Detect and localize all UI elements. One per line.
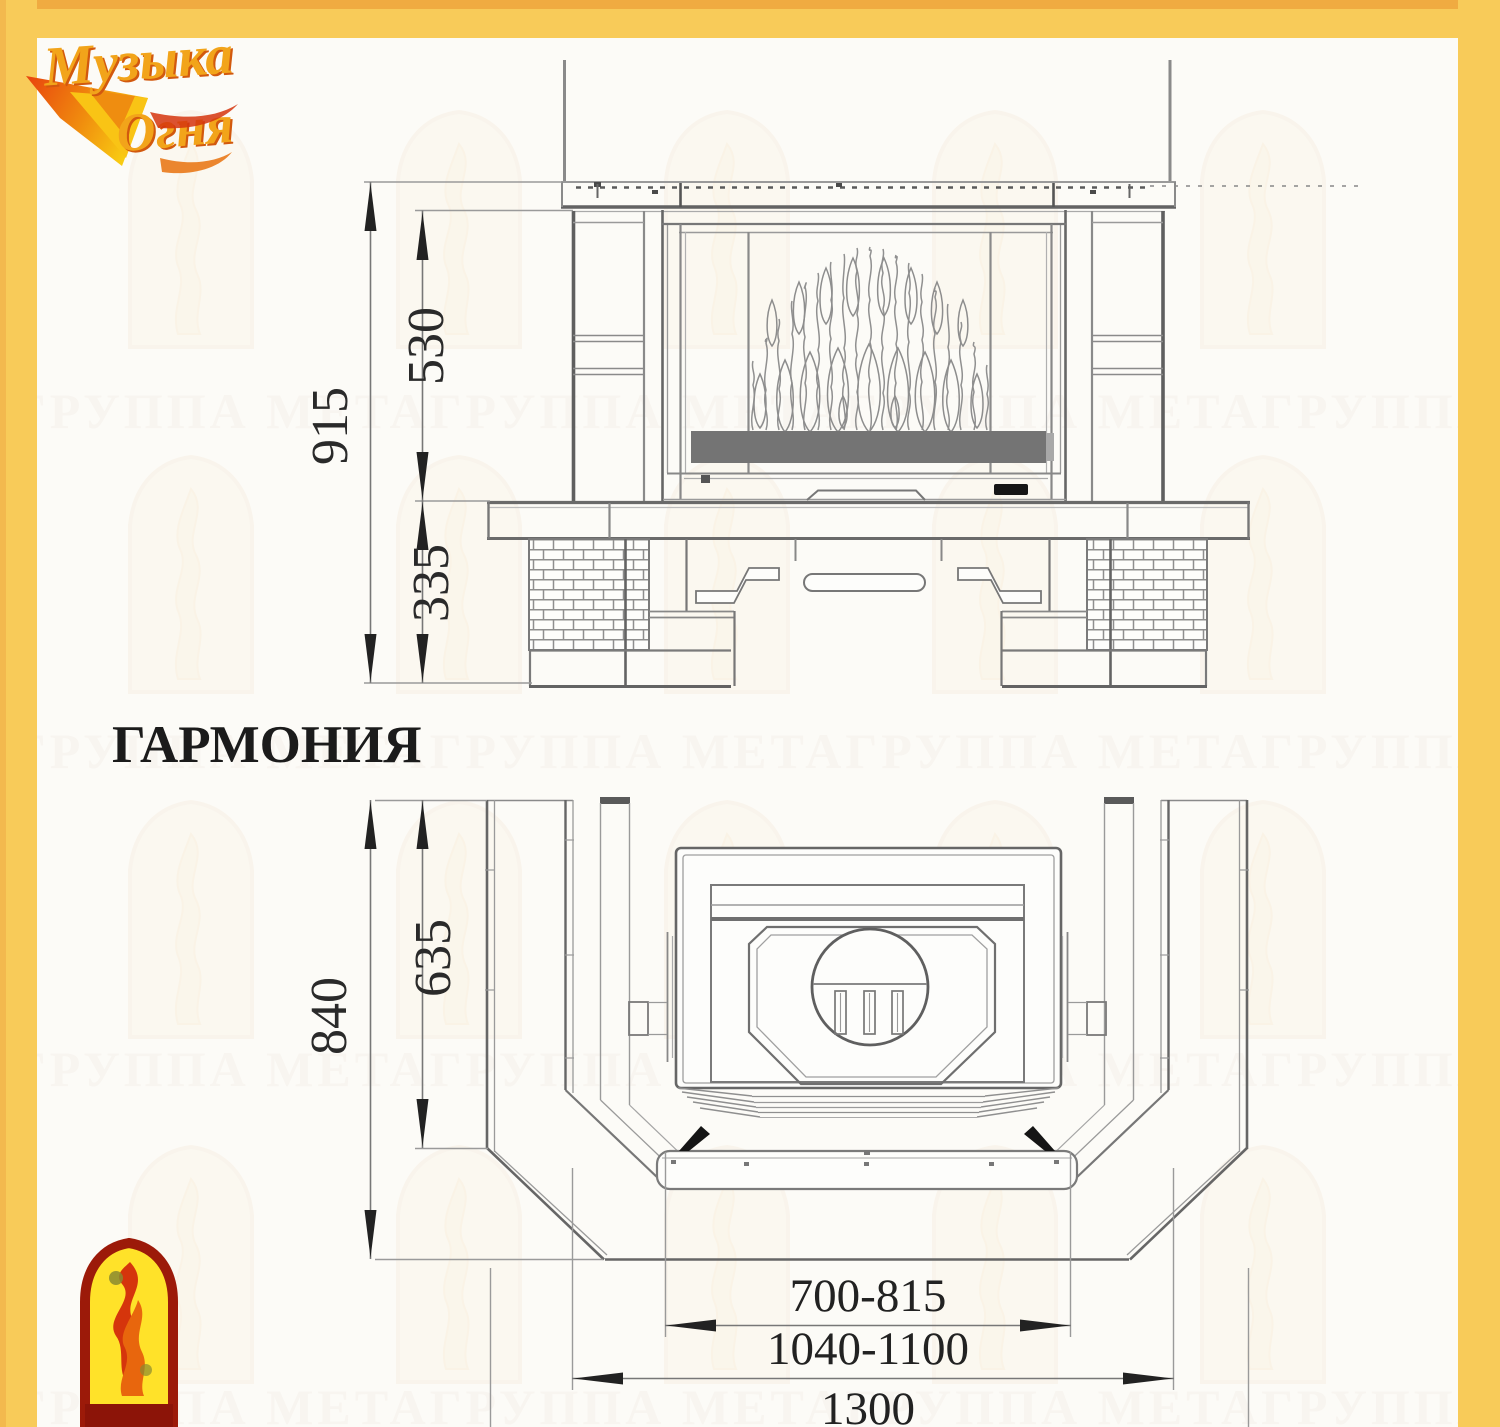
svg-text:840: 840: [301, 977, 358, 1055]
svg-text:700-815: 700-815: [790, 1270, 947, 1322]
svg-text:Огня: Огня: [114, 94, 236, 164]
svg-text:915: 915: [302, 387, 359, 465]
svg-text:ГАРМОНИЯ: ГАРМОНИЯ: [112, 716, 422, 774]
svg-text:635: 635: [405, 919, 462, 997]
svg-text:1300: 1300: [821, 1383, 915, 1427]
svg-text:Музыка: Музыка: [40, 24, 234, 99]
svg-text:1040-1100: 1040-1100: [767, 1323, 969, 1375]
svg-text:530: 530: [398, 307, 455, 385]
svg-text:335: 335: [403, 544, 460, 622]
